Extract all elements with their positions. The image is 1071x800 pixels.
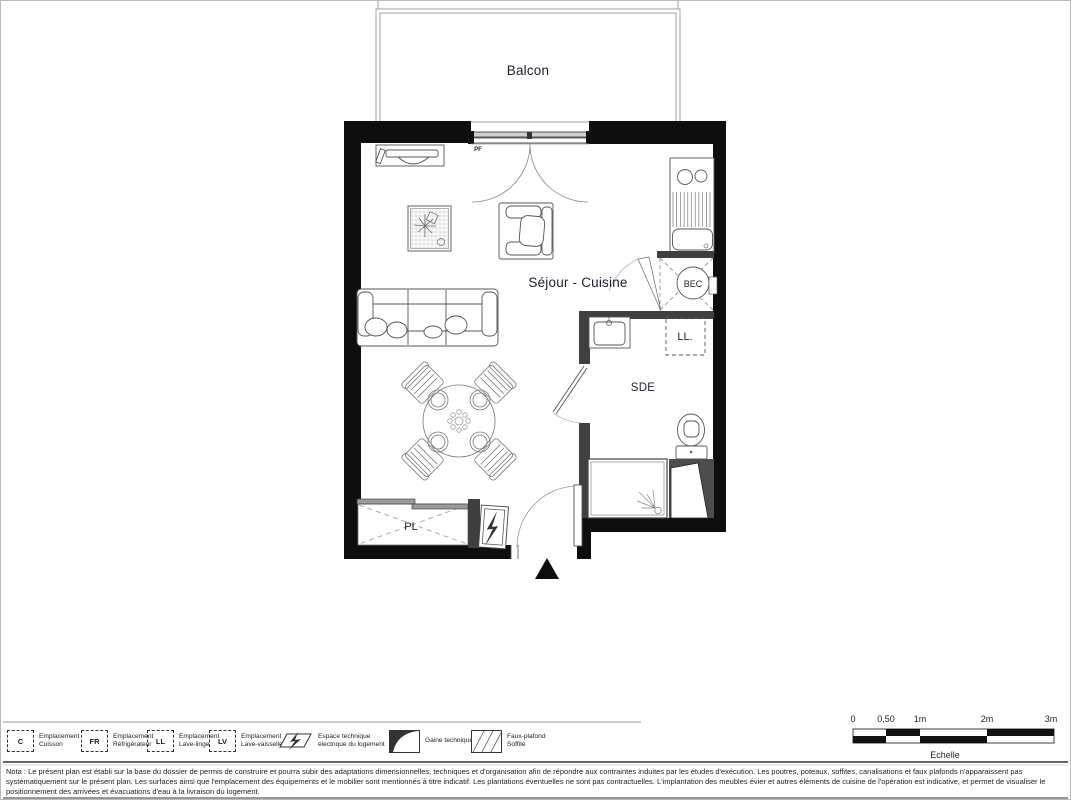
- nota-text: Nota : Le présent plan est établi sur la…: [6, 767, 1064, 797]
- floorplan-svg: Balcon PF: [1, 1, 1070, 799]
- french-window: [468, 131, 592, 202]
- entrance-door: [511, 485, 582, 559]
- washbasin: [589, 317, 630, 348]
- balcony-label: Balcon: [507, 63, 549, 78]
- floorplan-canvas: Balcon PF: [0, 0, 1071, 800]
- armchair: [499, 203, 553, 259]
- wall-stub: [468, 499, 480, 548]
- toilet: [676, 414, 707, 459]
- technical-duct-icon: [389, 730, 420, 753]
- legend-item-lave-vaisselle: LV Emplacement Lave-vaisselle: [209, 726, 283, 756]
- electrical-panel: [479, 505, 509, 549]
- washer-spot-symbol: LL: [147, 730, 174, 752]
- entrance-marker: [535, 558, 559, 579]
- dishwasher-spot-symbol: LV: [209, 730, 236, 752]
- balcony: [376, 1, 680, 122]
- living-kitchen-label: Séjour - Cuisine: [528, 275, 627, 290]
- legend: C Emplacement Cuisson FR Emplacement Réf…: [1, 723, 1070, 761]
- kitchen-block: [670, 158, 714, 253]
- legend-item-espace-technique: Espace technique électrique du logement: [277, 726, 385, 756]
- legend-item-refrigerateur: FR Emplacement Réfrigérateur: [81, 726, 153, 756]
- french-window-label: PF: [474, 147, 482, 153]
- water-heater-label: BEC: [684, 279, 703, 289]
- dining-set: [401, 361, 518, 482]
- shower: [588, 459, 667, 518]
- electrical-space-icon: [277, 729, 313, 753]
- cooking-spot-symbol: C: [7, 730, 34, 752]
- bathroom-label: SDE: [631, 382, 656, 394]
- false-ceiling-icon: [471, 730, 502, 753]
- dining-table: [423, 385, 495, 457]
- bathroom-door: [553, 366, 587, 423]
- legend-item-cuisson: C Emplacement Cuisson: [7, 726, 79, 756]
- closet-label: PL: [404, 521, 417, 533]
- washing-machine-label: LL.: [677, 331, 692, 343]
- tv-unit: [376, 145, 444, 166]
- rug: [408, 206, 451, 251]
- fridge-spot-symbol: FR: [81, 730, 108, 752]
- sofa: [357, 289, 498, 346]
- technical-duct: [669, 459, 714, 518]
- closet-door-leaf: [638, 257, 661, 311]
- legend-item-gaine-technique: Gaine technique: [389, 726, 473, 756]
- legend-item-faux-plafond: Faux-plafond Soffite: [471, 726, 546, 756]
